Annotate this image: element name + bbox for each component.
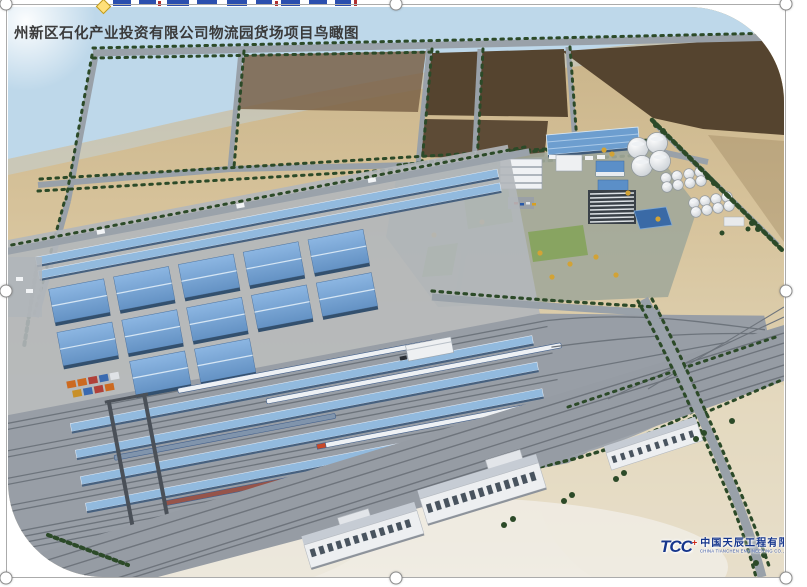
tcc-logo-name-en: CHINA TIANCHEN ENGINEERING CO., LTD.	[700, 550, 784, 554]
presentation-slide: 州新区石化产业投资有限公司物流园货场项目鸟瞰图 TCC+ 中国天辰工程有限公司 …	[0, 0, 807, 587]
resize-handle-left-middle[interactable]	[0, 285, 13, 298]
resize-handle-top-right[interactable]	[780, 0, 793, 11]
picture-caption: 州新区石化产业投资有限公司物流园货场项目鸟瞰图	[14, 22, 359, 43]
resize-handle-bottom-right[interactable]	[780, 572, 793, 585]
staging-pad	[8, 257, 42, 317]
tcc-logo-plus: +	[692, 537, 697, 547]
aerial-render-scene	[8, 7, 784, 577]
wordart-fragment-glyphs	[113, 0, 351, 6]
resize-handle-bottom-middle[interactable]	[390, 572, 403, 585]
aerial-render-picture[interactable]: 州新区石化产业投资有限公司物流园货场项目鸟瞰图 TCC+ 中国天辰工程有限公司 …	[8, 7, 784, 577]
pond	[634, 207, 672, 229]
slide-title-wordart-clipped[interactable]	[110, 0, 370, 7]
resize-handle-right-middle[interactable]	[780, 285, 793, 298]
outpost-building	[724, 217, 744, 226]
tcc-logo-abbr: TCC+	[660, 538, 697, 555]
resize-handle-bottom-left[interactable]	[0, 572, 13, 585]
tcc-logo: TCC+ 中国天辰工程有限公司 CHINA TIANCHEN ENGINEERI…	[660, 538, 784, 555]
